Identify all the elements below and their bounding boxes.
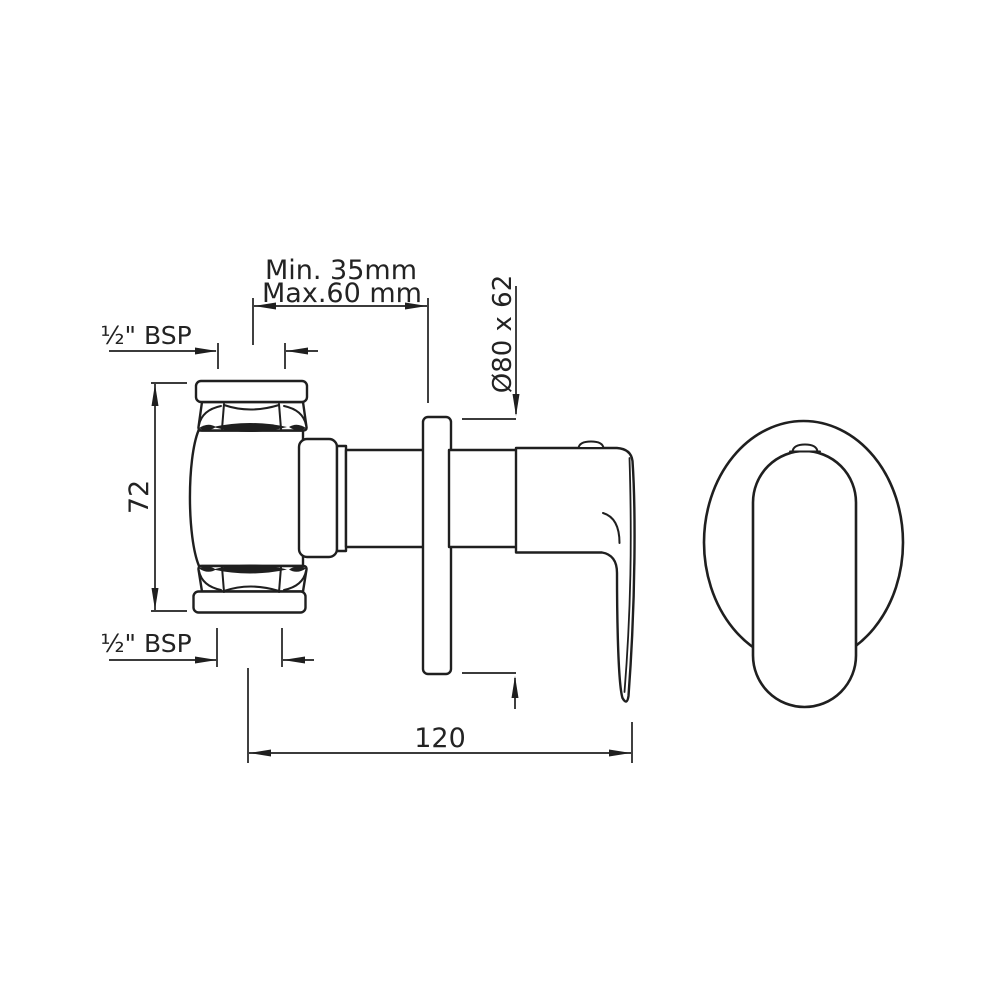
dim-overall-length: 120 (248, 668, 632, 763)
dim-thread-bottom: ½" BSP (100, 628, 314, 667)
valve-body (190, 431, 303, 567)
technical-drawing-canvas: Min. 35mm Max.60 mm ½" BSP ½" BSP (0, 0, 1000, 1000)
spindle-shaft-right (449, 450, 518, 547)
dim-flange-size-label: Ø80 x 62 (488, 275, 518, 394)
handle-button-front (793, 445, 818, 452)
spindle-ring (337, 446, 346, 551)
handle-button-side (579, 442, 604, 449)
dim-thread-top-label: ½" BSP (100, 321, 191, 350)
inlet-cap-top (196, 381, 307, 402)
dim-wall-depth-label-max: Max.60 mm (262, 278, 422, 309)
spindle-shaft-left (346, 450, 427, 547)
inlet-cap-bottom (194, 592, 306, 613)
dim-thread-bottom-label: ½" BSP (100, 629, 191, 658)
dim-overall-length-label: 120 (414, 723, 466, 754)
side-view (190, 381, 635, 702)
lever-handle-front (753, 451, 856, 707)
dim-body-height-label: 72 (124, 480, 155, 514)
wall-flange-plate (423, 417, 451, 674)
handle-body-and-lever (516, 448, 635, 702)
valve-dimension-drawing: Min. 35mm Max.60 mm ½" BSP ½" BSP (0, 0, 1000, 1000)
front-view (704, 421, 903, 707)
dim-body-height: 72 (124, 383, 187, 611)
dim-thread-top: ½" BSP (100, 321, 318, 369)
body-shoulder (299, 439, 337, 557)
